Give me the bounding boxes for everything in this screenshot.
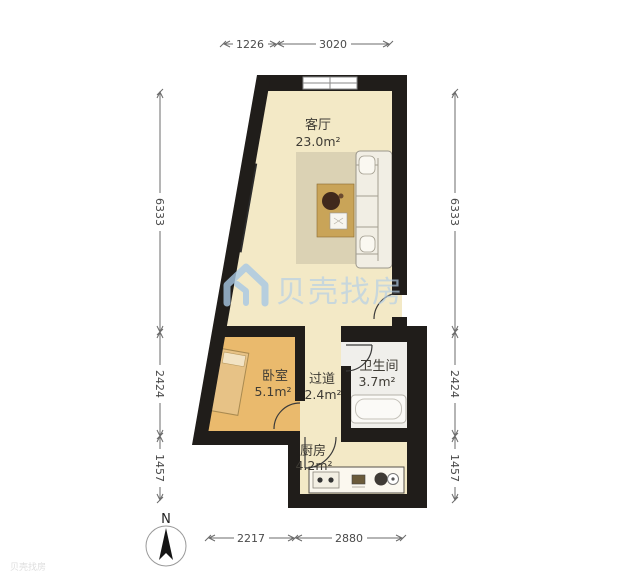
dim-bottom-2880: 2880 [335, 532, 363, 545]
faucet-dot [391, 477, 394, 480]
wall-bathroom-left [341, 366, 351, 432]
corner-watermark-text: 贝壳找房 [10, 561, 46, 573]
wall-bath-kitchen [341, 428, 427, 442]
bedroom-label: 卧室 [262, 368, 288, 384]
burner-icon [328, 477, 333, 482]
dimension-bottom: 2217 2880 [205, 531, 406, 545]
dim-left-2424: 2424 [153, 370, 166, 398]
window-top [303, 77, 357, 89]
compass-north-label: N [161, 512, 171, 527]
dimension-top: 1226 3020 [220, 37, 393, 51]
sofa [356, 151, 392, 268]
hallway-area: 2.4m² [304, 387, 341, 402]
dim-left-1457: 1457 [153, 454, 166, 482]
dim-left-6333: 6333 [153, 198, 166, 226]
stove-icon [313, 472, 339, 488]
dim-right-2424: 2424 [448, 370, 461, 398]
compass-needle-icon [159, 528, 173, 560]
kitchen-area: 4.2m² [295, 458, 332, 473]
living-room-area: 23.0m² [295, 134, 340, 149]
dim-bottom-2217: 2217 [237, 532, 265, 545]
bathroom-label: 卫生间 [359, 359, 398, 374]
wall-bathroom-top [341, 326, 427, 342]
kitchen-label: 厨房 [300, 443, 326, 459]
floorplan-page: 贝壳找房 客厅 23.0m² 卧室 5.1m² 过道 2.4m² 卫生间 3.7… [0, 0, 640, 584]
dim-top-3020: 3020 [319, 38, 347, 51]
burner-icon [317, 477, 322, 482]
wall-kitchen-bottom [288, 494, 427, 508]
brand-watermark-text: 贝壳找房 [276, 275, 404, 310]
living-room-label: 客厅 [305, 117, 331, 133]
wall-right-upper [392, 75, 407, 295]
small-appliance-icon [352, 475, 365, 484]
wall-living-south [220, 326, 305, 337]
plant-leaf-icon [339, 194, 344, 199]
dimension-left: 6333 2424 1457 [153, 89, 167, 503]
wall-bedroom-bottom [195, 431, 300, 445]
bathroom-furniture [351, 395, 406, 423]
wall-right-lower [407, 326, 427, 508]
dim-right-6333: 6333 [448, 198, 461, 226]
hallway-label: 过道 [309, 372, 335, 387]
dim-top-1226: 1226 [236, 38, 264, 51]
compass: N [146, 512, 186, 566]
dim-right-1457: 1457 [448, 454, 461, 482]
bedroom-area: 5.1m² [254, 384, 291, 399]
sink-basin-icon [375, 473, 388, 486]
dimension-right: 6333 2424 1457 [448, 89, 462, 503]
bathroom-area: 3.7m² [358, 374, 395, 389]
floorplan-image: 贝壳找房 客厅 23.0m² 卧室 5.1m² 过道 2.4m² 卫生间 3.7… [0, 0, 640, 584]
plant-icon [322, 192, 340, 210]
